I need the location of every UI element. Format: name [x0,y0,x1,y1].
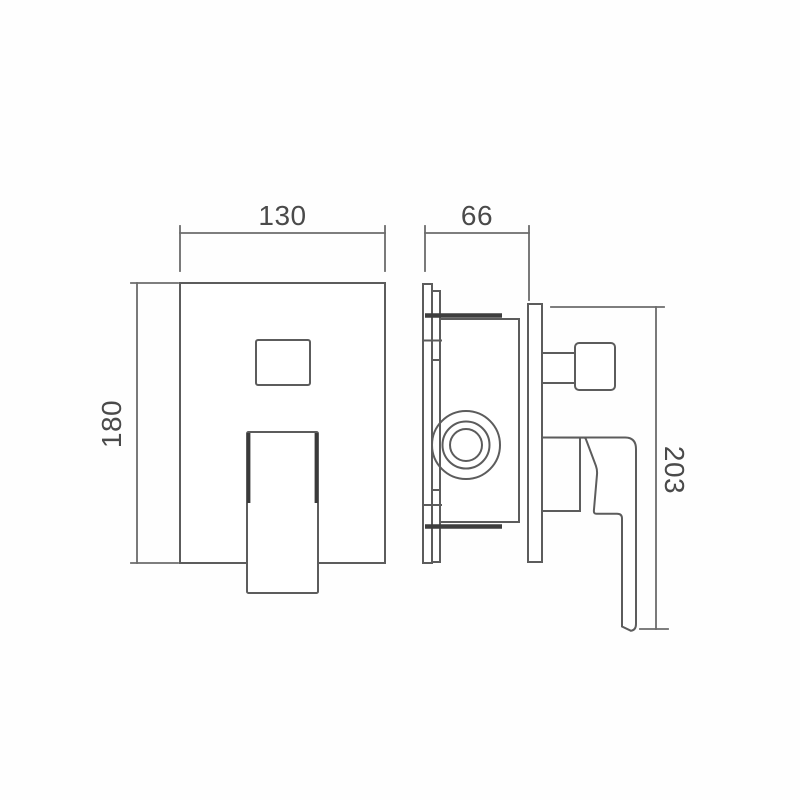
mounting-flange-outer [423,284,432,563]
dim-front-width: 130 [180,200,385,271]
diverter-window [256,340,310,385]
dim-label-front-width: 130 [258,200,306,231]
side-view [423,284,636,631]
front-handle [247,432,318,593]
diverter-knob-side [575,343,615,390]
dim-label-overall-height: 203 [659,446,690,494]
drawing-canvas: 130 66 180 203 [0,0,800,800]
mounting-flange-inner-top [432,291,440,360]
lever-handle-side [543,438,636,631]
technical-drawing: 130 66 180 203 [0,0,800,800]
dim-label-front-height: 180 [96,400,127,448]
valve-body [440,319,519,522]
diverter-stem-side [542,353,575,383]
wall-plate-side [528,304,542,562]
dim-label-depth: 66 [461,200,493,231]
front-view [180,283,385,593]
dim-front-height: 180 [96,283,178,563]
dim-depth: 66 [425,200,529,300]
